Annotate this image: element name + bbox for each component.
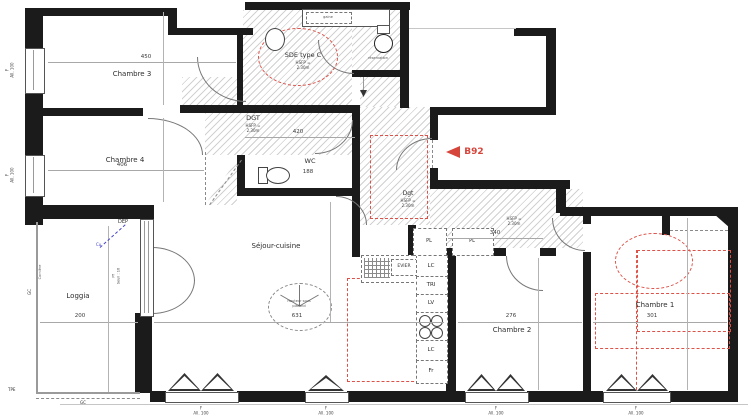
dim-chambre3: 450 — [141, 54, 152, 60]
window-glass-line — [33, 50, 34, 90]
hob-burner-icon — [431, 315, 443, 327]
reservation-line-chambre1 — [636, 250, 637, 390]
dim-sejour: 631 — [292, 313, 303, 319]
wall — [43, 108, 143, 116]
window — [25, 48, 45, 94]
heater-door-line — [363, 77, 364, 91]
dim-line — [40, 322, 138, 323]
casement-triangle-inner — [204, 376, 231, 389]
window-sill: All. 100 — [9, 167, 14, 182]
wall — [237, 188, 360, 196]
wall — [150, 391, 166, 402]
wall — [237, 391, 305, 402]
survey-line — [163, 118, 164, 202]
note-cu: Cu — [96, 241, 101, 249]
window — [165, 392, 239, 403]
window-label: F All. 100 — [628, 407, 643, 416]
loggia-bottom-line — [36, 392, 140, 394]
kitchen-cell-label: LC — [428, 262, 435, 270]
room-label-chambre3: Chambre 3 — [113, 70, 152, 78]
hob-burner-icon — [431, 327, 443, 339]
toilet-bowl-icon — [266, 167, 290, 184]
washbasin-icon — [265, 28, 285, 51]
facade-line — [409, 28, 516, 29]
hob-burner-icon — [419, 327, 431, 339]
electrical-dash-line — [100, 224, 126, 247]
kitchen-cell-label: LV — [428, 299, 434, 307]
wall — [527, 391, 603, 402]
wall — [583, 252, 591, 391]
room-label-sejour: Séjour-cuisine — [252, 242, 301, 250]
wall — [25, 8, 175, 16]
window-label: F All. 100 — [6, 167, 15, 182]
wall — [180, 105, 360, 113]
duct-label: gaine — [323, 15, 333, 19]
glazing-line — [144, 221, 145, 313]
door-arc-chambre4 — [148, 118, 203, 155]
glazing-line — [148, 221, 149, 313]
dim-chambre1: 301 — [647, 313, 658, 319]
wall — [430, 107, 556, 115]
floor-plan: F All. 100 F All. 100 F All. 100 F All. … — [0, 0, 750, 420]
note-corniere: Cornière — [38, 265, 42, 280]
door-arc-loggia-1 — [152, 247, 195, 281]
wall — [400, 2, 409, 77]
wall — [347, 391, 465, 402]
wall — [514, 28, 556, 36]
room-label-chambre1: Chambre 1 — [636, 301, 675, 309]
window — [465, 392, 529, 403]
dim-line — [448, 238, 543, 239]
dim-loggia: 200 — [75, 313, 86, 319]
closet-label: PL — [426, 237, 432, 245]
entry-door-dash — [432, 140, 433, 168]
casement-triangle-inner — [499, 377, 522, 389]
survey-line — [538, 258, 539, 390]
wall — [400, 77, 409, 108]
casement-triangle-inner — [171, 376, 198, 389]
door-arc-loggia-2 — [152, 280, 195, 314]
window-label: F All. 100 — [318, 407, 333, 416]
heater-bracket-icon — [377, 25, 390, 34]
ceiling-note-line1: Hauteur sous — [287, 299, 310, 303]
reservation-rect-kitchen — [347, 278, 419, 382]
window-sill: All. 100 — [628, 410, 643, 415]
room-height-sde: 2.30m — [297, 66, 310, 71]
window-label: F All. 100 — [6, 62, 15, 77]
note-gc-side: GC — [26, 289, 34, 295]
wall — [352, 70, 409, 77]
wall — [662, 215, 670, 235]
dashed-partition — [205, 152, 206, 205]
hall-height: 2.30m — [508, 222, 521, 227]
dim-line — [48, 62, 236, 63]
hob-burner-icon — [419, 315, 431, 327]
exterior-line — [60, 404, 748, 405]
ceiling-note-line2: plafond — [292, 304, 305, 308]
survey-line — [163, 12, 164, 105]
room-height-dgt: 2.30m — [247, 129, 260, 134]
wall — [28, 205, 154, 219]
window-label: F All. 100 — [193, 407, 208, 416]
kitchen-cell-label: TRI — [427, 281, 436, 289]
room-height-dgt2: 2.30m — [402, 204, 415, 209]
window-glass-line — [33, 157, 34, 193]
room-label-sde: SDE type C — [285, 51, 321, 59]
wall — [25, 92, 43, 158]
reservation-note: réservation — [368, 56, 388, 60]
room-label-loggia: Loggia — [66, 292, 89, 300]
dim-chambre2: 276 — [506, 313, 517, 319]
note-pf: Pf — [112, 274, 116, 277]
loggia-glazing — [140, 219, 154, 317]
wall — [352, 225, 360, 257]
note-gc-bottom: GC — [80, 399, 86, 407]
reservation-rect-dgt2 — [370, 135, 428, 219]
window-sill: All. 100 — [193, 410, 208, 415]
window-sill: All. 100 — [9, 62, 14, 77]
wall — [430, 180, 570, 189]
survey-line — [687, 218, 688, 390]
window — [25, 155, 45, 197]
kitchen-cell-label: Fr — [428, 367, 433, 375]
window — [603, 392, 671, 403]
wall — [669, 391, 738, 402]
survey-line — [330, 202, 331, 322]
note-seuil: Seuil : 16 — [116, 268, 120, 284]
hatch-dgt-triangle — [205, 160, 237, 205]
sink-drainer-icon — [364, 258, 390, 278]
wall — [135, 313, 152, 393]
casement-triangle-inner — [609, 377, 634, 389]
dim-line — [458, 322, 582, 323]
wall — [556, 183, 566, 213]
room-label-wc: WC — [305, 157, 316, 165]
dim-line — [245, 137, 355, 138]
wall — [546, 28, 556, 115]
room-label-chambre2: Chambre 2 — [493, 326, 532, 334]
casement-triangle-inner — [311, 378, 341, 389]
window-sill: All. 100 — [318, 410, 333, 415]
room-label-dgt: DGT — [246, 114, 260, 122]
dim-line — [154, 322, 444, 323]
dim-line — [48, 170, 204, 171]
window-sill: All. 100 — [488, 410, 503, 415]
dim-hall: 340 — [490, 230, 501, 236]
unit-marker-arrow-icon — [446, 146, 460, 158]
casement-triangle-inner — [640, 377, 665, 389]
wall — [540, 248, 556, 256]
loggia-threshold-dash — [36, 398, 140, 399]
dim-dgt: 420 — [293, 129, 304, 135]
water-heater-icon — [374, 34, 393, 53]
window — [305, 392, 349, 403]
casement-triangle-inner — [470, 377, 493, 389]
chambre1-dash — [670, 230, 728, 231]
kitchen-cell-label: LC — [428, 346, 435, 354]
dim-wc: 188 — [303, 169, 314, 175]
loggia-left-line — [36, 222, 38, 394]
unit-marker-label: B92 — [464, 148, 483, 156]
dim-line — [593, 322, 727, 323]
survey-line — [108, 226, 109, 392]
note-pf-seuil: Pf Seuil : 16 — [112, 268, 121, 284]
note-tpe: TPE — [8, 386, 15, 394]
window-label: F All. 100 — [488, 407, 503, 416]
sink-label: EVIER — [397, 263, 410, 271]
dim-chambre4: 406 — [117, 162, 128, 168]
